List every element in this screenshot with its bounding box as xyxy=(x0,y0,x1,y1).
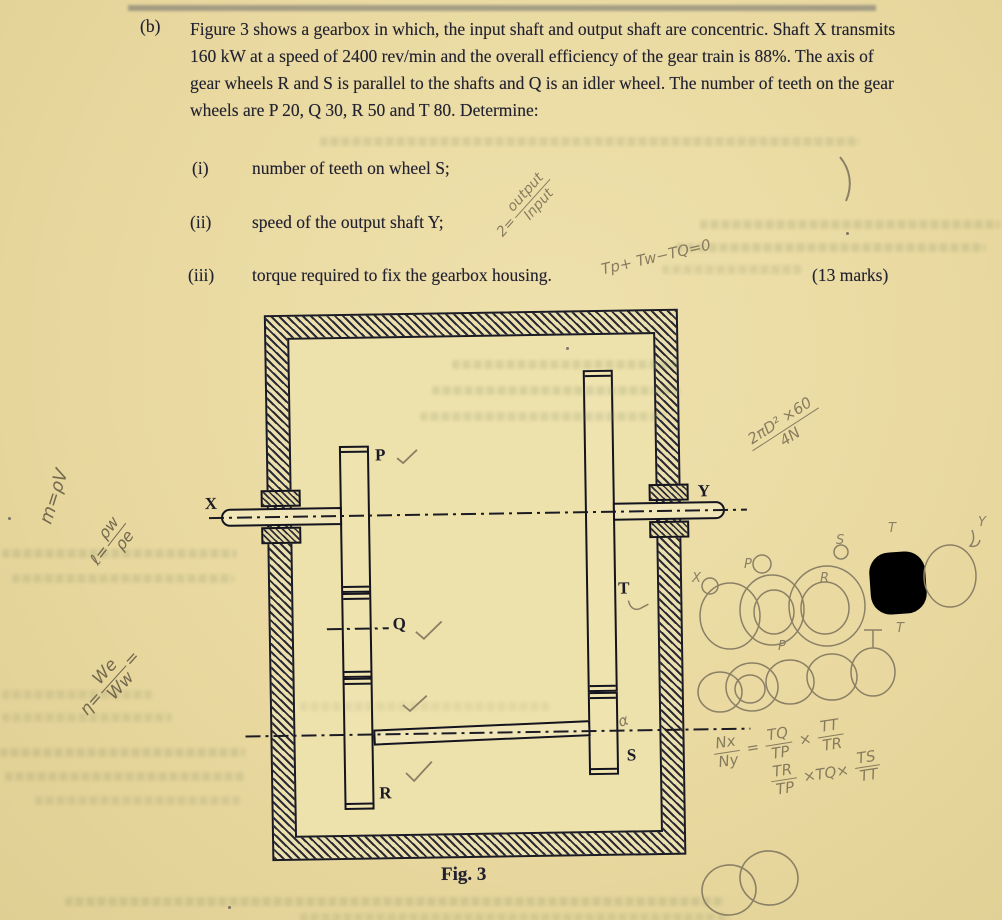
gear-rim xyxy=(585,375,611,377)
bleed-through-line xyxy=(700,220,1000,229)
bleed-through-line xyxy=(300,702,550,711)
gear-rim xyxy=(590,685,616,687)
pencil-check xyxy=(626,595,652,615)
label-shaft-x: X xyxy=(205,494,218,514)
bleed-through-line xyxy=(65,897,725,906)
pencil-check xyxy=(413,618,445,642)
ink-speck xyxy=(228,906,231,909)
sketch-letter: T xyxy=(888,521,897,536)
bearing-input-upper xyxy=(261,490,301,508)
bleed-through-line xyxy=(5,772,245,781)
ratio-lhs-den: Ny xyxy=(714,751,742,772)
gear-rim xyxy=(590,697,616,699)
gear-rim xyxy=(344,671,370,673)
bleed-through-line xyxy=(35,796,240,805)
label-gear-q: Q xyxy=(393,614,407,634)
bleed-through-line xyxy=(432,386,680,395)
gear-rim xyxy=(341,451,367,453)
sketch-letter: X xyxy=(691,571,702,586)
ink-speck xyxy=(8,517,11,520)
gear-s xyxy=(588,692,619,775)
bleed-through-line xyxy=(452,360,677,369)
label-gear-p: P xyxy=(375,445,386,465)
bleed-through-line xyxy=(12,574,234,583)
sketch-letter: S xyxy=(836,533,844,548)
sketch-letter: T xyxy=(896,621,905,636)
bearing-input-lower xyxy=(261,527,301,545)
label-gear-r: R xyxy=(379,783,392,803)
ratio-mid: ×TQ× xyxy=(802,760,850,785)
ratio-f2-den: TR xyxy=(818,734,846,755)
ratio-times: × xyxy=(798,729,813,749)
sketch-letter: R xyxy=(820,571,829,586)
bleed-through-line xyxy=(300,913,730,920)
bleed-through-line xyxy=(662,265,802,274)
bleed-through-line xyxy=(420,412,665,421)
bearing-output-upper xyxy=(649,484,689,502)
gear-rim xyxy=(343,598,369,600)
pencil-stroke xyxy=(836,155,858,205)
gear-rim xyxy=(343,586,369,588)
figure-caption: Fig. 3 xyxy=(441,864,486,886)
bleed-through-line xyxy=(320,137,860,146)
bearing-output-lower xyxy=(649,521,689,539)
scan-edge-smudge xyxy=(128,5,876,11)
sketch-letter: Y xyxy=(978,515,987,530)
label-gear-s: S xyxy=(627,745,637,765)
sketch-letter: P xyxy=(778,639,786,654)
bleed-through-line xyxy=(0,748,245,757)
gear-rim xyxy=(591,768,617,770)
ink-speck xyxy=(846,232,849,235)
gear-r xyxy=(343,678,375,810)
bleed-through-line xyxy=(676,243,986,252)
scanned-exam-page: (b) Figure 3 shows a gearbox in which, t… xyxy=(0,0,1002,920)
label-shaft-y: Y xyxy=(697,481,710,501)
gear-rim xyxy=(345,683,371,685)
gear-q xyxy=(341,593,372,678)
ink-speck xyxy=(566,347,569,350)
ratio-equals: = xyxy=(745,738,760,758)
pencil-check xyxy=(403,759,435,785)
pencil-circle-doodle xyxy=(693,846,813,920)
gear-p xyxy=(339,446,371,593)
gear-train-sketch: X P S R T Y P T xyxy=(690,500,996,725)
pencil-check xyxy=(394,447,420,467)
gear-rim xyxy=(346,803,372,805)
sketch-letter: P xyxy=(744,557,752,572)
